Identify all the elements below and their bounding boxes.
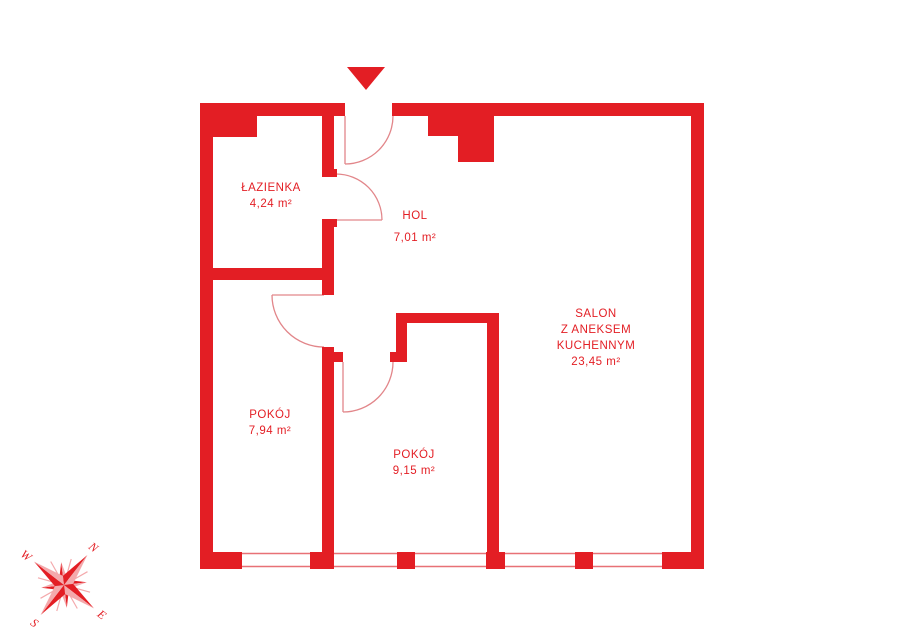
wall-chimney-step-1 bbox=[428, 103, 458, 136]
wall-bottom-seg-6 bbox=[662, 552, 704, 569]
compass-letter-e: E bbox=[94, 606, 110, 623]
room-name: POKÓJ bbox=[393, 447, 436, 463]
compass-letter-w: W bbox=[18, 547, 35, 565]
room1-door-arc bbox=[272, 295, 324, 347]
room-name: POKÓJ bbox=[249, 407, 292, 423]
wall-bottom-seg-1 bbox=[200, 552, 242, 569]
room-name: HOL bbox=[394, 205, 437, 227]
wall-left bbox=[200, 103, 213, 569]
room-name-line2: Z ANEKSEM bbox=[557, 322, 636, 338]
wall-chimney-step-2 bbox=[458, 103, 494, 162]
bathroom-door-arc bbox=[336, 174, 382, 220]
room-area: 23,45 m² bbox=[557, 354, 636, 370]
wall-bottom-seg-3 bbox=[397, 552, 415, 569]
room-label-pokoj-1: POKÓJ 7,94 m² bbox=[249, 407, 292, 439]
wall-bathroom-block bbox=[200, 103, 257, 137]
room-name: ŁAZIENKA bbox=[241, 180, 301, 196]
compass-letter-s: S bbox=[28, 615, 41, 630]
compass-letter-n: N bbox=[85, 539, 101, 556]
wall-room2-door-stub bbox=[322, 352, 343, 362]
wall-bathroom-upper bbox=[322, 116, 334, 177]
room-area: 7,01 m² bbox=[394, 227, 437, 249]
floorplan: ŁAZIENKA 4,24 m² HOL 7,01 m² SALON Z ANE… bbox=[0, 0, 904, 640]
room-label-lazienka: ŁAZIENKA 4,24 m² bbox=[241, 180, 301, 212]
room-name: SALON bbox=[557, 306, 636, 322]
wall-bathroom-bottom bbox=[213, 268, 334, 280]
room-area: 4,24 m² bbox=[241, 196, 301, 212]
entrance-door-arc bbox=[345, 116, 393, 164]
room-area: 9,15 m² bbox=[393, 463, 436, 479]
room-label-pokoj-2: POKÓJ 9,15 m² bbox=[393, 447, 436, 479]
wall-right bbox=[691, 103, 704, 569]
wall-bathroom-lower bbox=[322, 219, 334, 295]
wall-room2-top bbox=[396, 313, 499, 323]
room-label-salon: SALON Z ANEKSEM KUCHENNYM 23,45 m² bbox=[557, 306, 636, 370]
wall-room2-right bbox=[487, 313, 499, 569]
wall-room1-divider bbox=[322, 347, 334, 569]
room-area: 7,94 m² bbox=[249, 423, 292, 439]
room-name-line3: KUCHENNYM bbox=[557, 338, 636, 354]
wall-bottom-seg-5 bbox=[575, 552, 593, 569]
room-label-hol: HOL 7,01 m² bbox=[394, 205, 437, 249]
compass-rose-icon: N E S W bbox=[4, 525, 124, 640]
wall-bathroom-jamb-top bbox=[322, 169, 337, 177]
room2-door-arc bbox=[343, 362, 393, 412]
entrance-arrow-icon bbox=[347, 67, 385, 90]
